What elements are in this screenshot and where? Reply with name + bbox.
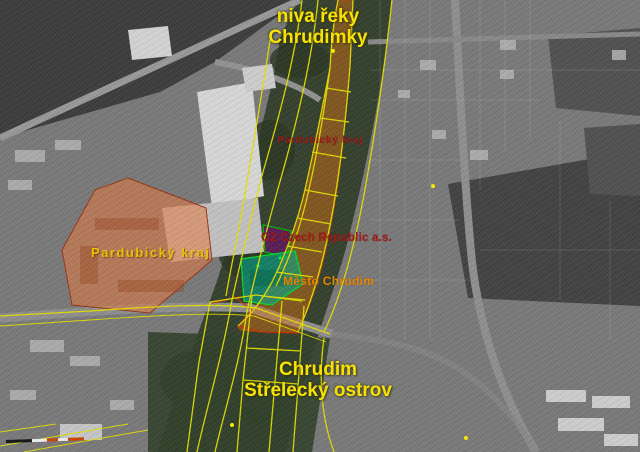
label-o2-owner: O2 Czech Republic a.s. — [261, 232, 392, 244]
label-floodplain-line1: niva řeky — [228, 6, 408, 27]
scale-bar-segment — [58, 438, 68, 441]
scale-bar-segment — [32, 439, 47, 443]
scale-bar-segment — [47, 438, 58, 441]
label-region-strip: Pardubický kraj — [277, 134, 363, 146]
map-viewport[interactable]: niva řeky Chrudimky Pardubický kraj Pard… — [0, 0, 640, 452]
label-island: Chrudim Střelecký ostrov — [232, 359, 404, 401]
field-topright-2 — [584, 124, 640, 196]
warehouse-building — [128, 26, 172, 60]
scale-bar-segment — [68, 437, 84, 441]
small-building — [242, 64, 276, 92]
field-topright-1 — [548, 28, 640, 116]
label-floodplain-line2: Chrudimky — [228, 27, 408, 48]
label-floodplain: niva řeky Chrudimky — [228, 6, 408, 48]
label-region-parcel: Pardubický kraj — [91, 245, 210, 260]
vertex-dot — [279, 257, 282, 260]
label-city-owner: Město Chrudim — [283, 274, 374, 288]
label-island-line2: Střelecký ostrov — [232, 380, 404, 401]
label-island-line1: Chrudim — [232, 359, 404, 380]
